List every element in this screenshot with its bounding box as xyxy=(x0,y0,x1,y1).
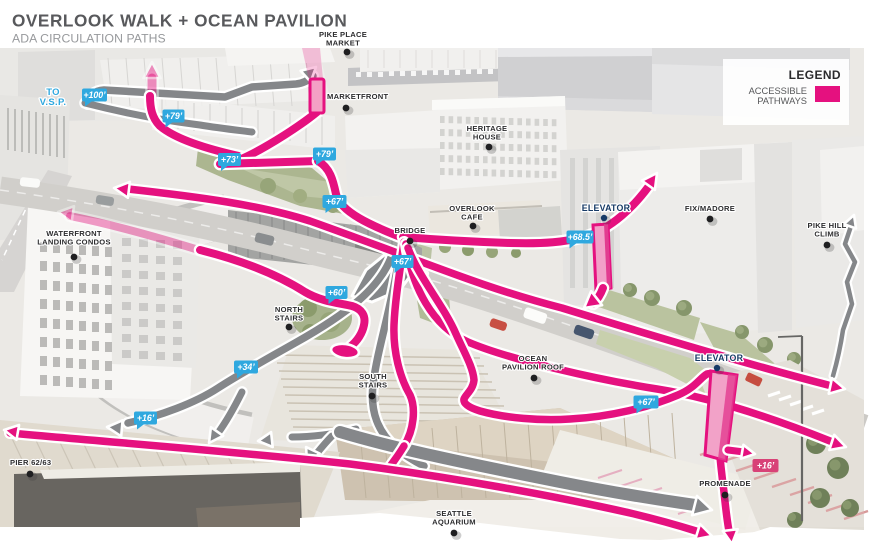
svg-text:+34’: +34’ xyxy=(237,362,255,372)
svg-text:+79’: +79’ xyxy=(165,111,183,121)
svg-text:+68.5’: +68.5’ xyxy=(568,232,593,242)
svg-text:BRIDGE: BRIDGE xyxy=(394,226,425,235)
svg-text:LEGEND: LEGEND xyxy=(789,68,841,82)
svg-text:STAIRS: STAIRS xyxy=(359,381,388,390)
svg-text:+16’: +16’ xyxy=(137,413,155,423)
svg-text:HOUSE: HOUSE xyxy=(473,133,501,142)
svg-text:PIER 62/63: PIER 62/63 xyxy=(10,458,51,467)
svg-text:PATHWAYS: PATHWAYS xyxy=(757,96,807,106)
svg-text:STAIRS: STAIRS xyxy=(275,314,304,323)
svg-text:+67’: +67’ xyxy=(326,197,344,207)
svg-text:MARKETFRONT: MARKETFRONT xyxy=(327,92,388,101)
svg-text:OVERLOOK WALK + OCEAN PAVILION: OVERLOOK WALK + OCEAN PAVILION xyxy=(12,11,347,31)
svg-text:CAFE: CAFE xyxy=(461,213,483,222)
svg-text:FIX/MADORE: FIX/MADORE xyxy=(685,204,735,213)
svg-text:+16’: +16’ xyxy=(757,461,775,471)
svg-text:ACCESSIBLE: ACCESSIBLE xyxy=(749,86,807,96)
svg-text:ELEVATOR: ELEVATOR xyxy=(695,353,744,363)
svg-text:PROMENADE: PROMENADE xyxy=(699,479,751,488)
svg-text:LANDING CONDOS: LANDING CONDOS xyxy=(37,238,111,247)
svg-text:ADA CIRCULATION PATHS: ADA CIRCULATION PATHS xyxy=(12,32,166,46)
svg-text:CLIMB: CLIMB xyxy=(814,230,840,239)
svg-text:MARKET: MARKET xyxy=(326,39,360,48)
svg-text:+67’: +67’ xyxy=(394,257,412,267)
svg-text:+100’: +100’ xyxy=(83,90,106,100)
svg-text:+67’: +67’ xyxy=(637,397,655,407)
svg-text:ELEVATOR: ELEVATOR xyxy=(582,203,631,213)
svg-text:AQUARIUM: AQUARIUM xyxy=(432,518,476,527)
svg-text:V.S.P.: V.S.P. xyxy=(40,97,67,108)
svg-text:+60’: +60’ xyxy=(328,288,346,298)
svg-text:+73’: +73’ xyxy=(221,155,239,165)
svg-text:PAVILION ROOF: PAVILION ROOF xyxy=(502,363,564,372)
svg-text:+79’: +79’ xyxy=(316,149,334,159)
